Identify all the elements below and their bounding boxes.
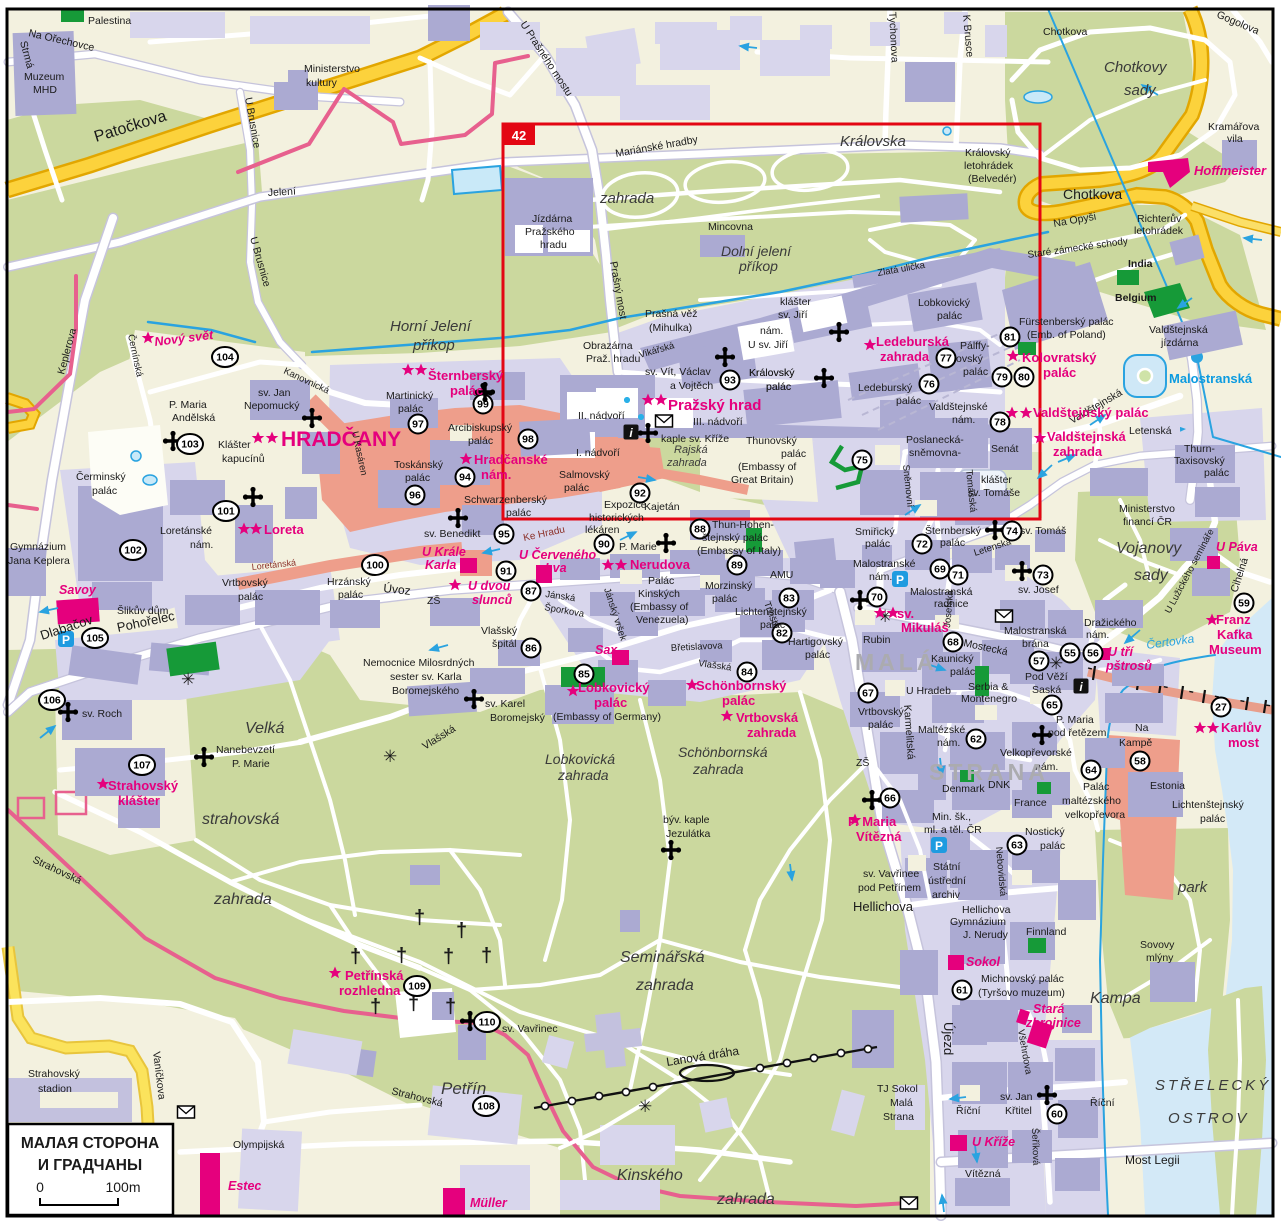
- svg-text:Kramářova: Kramářova: [1208, 121, 1260, 133]
- svg-text:89: 89: [731, 560, 743, 572]
- svg-text:Dražického: Dražického: [1084, 617, 1137, 629]
- svg-text:palác: palác: [594, 695, 627, 710]
- svg-text:66: 66: [884, 793, 896, 805]
- svg-text:96: 96: [409, 490, 421, 502]
- svg-text:Letenská: Letenská: [1129, 425, 1172, 437]
- svg-text:Jízdárna: Jízdárna: [532, 213, 572, 225]
- svg-text:71: 71: [952, 570, 964, 582]
- svg-text:Karlův: Karlův: [1221, 720, 1262, 735]
- svg-text:Andělská: Andělská: [172, 412, 215, 424]
- svg-text:Královský: Královský: [965, 147, 1011, 159]
- svg-text:81: 81: [1004, 332, 1016, 344]
- svg-text:60: 60: [1051, 1109, 1063, 1121]
- svg-text:Vrtbovský: Vrtbovský: [858, 706, 904, 718]
- svg-text:Stará: Stará: [1033, 1002, 1064, 1016]
- svg-text:palác: palác: [781, 448, 806, 460]
- svg-text:ml. a těl. ČR: ml. a těl. ČR: [924, 823, 982, 836]
- svg-text:Královska: Královska: [840, 133, 906, 150]
- svg-text:STŘELECKÝ: STŘELECKÝ: [1155, 1077, 1271, 1094]
- svg-text:lékáren: lékáren: [585, 524, 620, 536]
- svg-text:103: 103: [181, 439, 199, 451]
- svg-text:U Hradeb: U Hradeb: [906, 685, 951, 697]
- svg-text:palác: palác: [1204, 467, 1229, 479]
- svg-text:P. Marie: P. Marie: [619, 541, 657, 553]
- svg-text:U Páva: U Páva: [1216, 540, 1258, 554]
- svg-text:Palác: Palác: [1083, 781, 1109, 793]
- svg-text:Vlašský: Vlašský: [481, 625, 518, 637]
- svg-text:79: 79: [996, 372, 1008, 384]
- svg-text:sv. Roch: sv. Roch: [82, 708, 122, 720]
- svg-text:sester sv. Karla: sester sv. Karla: [390, 671, 462, 683]
- svg-text:Finnland: Finnland: [1026, 926, 1066, 938]
- svg-text:Kolovratský: Kolovratský: [1022, 350, 1097, 365]
- svg-text:palác: palác: [896, 395, 921, 407]
- svg-text:palác: palác: [92, 485, 117, 497]
- svg-text:Nostický: Nostický: [1025, 826, 1065, 838]
- svg-text:Sax: Sax: [595, 643, 618, 657]
- svg-text:Arcibiskupský: Arcibiskupský: [448, 422, 513, 434]
- svg-text:0: 0: [36, 1179, 44, 1195]
- svg-text:Horní Jelení: Horní Jelení: [390, 318, 473, 335]
- svg-text:sv. Vavřinec: sv. Vavřinec: [502, 1023, 558, 1035]
- svg-text:(Belvedér): (Belvedér): [968, 173, 1016, 185]
- svg-text:Martinický: Martinický: [386, 390, 434, 402]
- svg-text:palác: palác: [963, 366, 988, 378]
- svg-text:štejnský palác: štejnský palác: [702, 532, 768, 544]
- svg-text:102: 102: [124, 545, 142, 557]
- svg-text:Mincovna: Mincovna: [708, 221, 753, 233]
- svg-text:Ministerstvo: Ministerstvo: [1119, 503, 1175, 515]
- svg-text:ZŠ: ZŠ: [427, 594, 440, 607]
- svg-text:Kinského: Kinského: [617, 1167, 683, 1184]
- svg-text:sv. Vít, Václav: sv. Vít, Václav: [645, 366, 711, 378]
- svg-text:letohrádek: letohrádek: [964, 160, 1014, 172]
- svg-text:Valdštejnská: Valdštejnská: [1149, 324, 1208, 336]
- svg-text:Lobkovický: Lobkovický: [918, 297, 971, 309]
- svg-text:100m: 100m: [105, 1179, 140, 1195]
- svg-text:palác: palác: [766, 381, 791, 393]
- svg-text:nám.: nám.: [190, 539, 213, 551]
- svg-text:P. Marie: P. Marie: [232, 758, 270, 770]
- svg-text:strahovská: strahovská: [202, 811, 279, 828]
- svg-text:†: †: [414, 907, 425, 929]
- svg-text:Poslanecká-: Poslanecká-: [906, 434, 964, 446]
- svg-text:palác: palác: [405, 472, 430, 484]
- svg-text:Smiřický: Smiřický: [855, 526, 895, 538]
- svg-text:Pražského: Pražského: [525, 226, 575, 238]
- svg-text:jízdárna: jízdárna: [1160, 337, 1199, 349]
- svg-text:Jelení: Jelení: [268, 186, 297, 199]
- svg-text:Vítězná: Vítězná: [965, 1168, 1001, 1180]
- svg-text:Chotkova: Chotkova: [1063, 186, 1122, 202]
- svg-text:Lva: Lva: [545, 561, 567, 575]
- svg-text:nám.: nám.: [1086, 629, 1109, 641]
- svg-text:Gymnázium: Gymnázium: [10, 541, 66, 553]
- svg-text:Müller: Müller: [470, 1196, 508, 1210]
- svg-text:Obrazárna: Obrazárna: [583, 340, 633, 352]
- svg-text:sady: sady: [1124, 82, 1157, 99]
- svg-text:Petřín: Petřín: [441, 1079, 486, 1098]
- svg-text:107: 107: [133, 760, 151, 772]
- svg-text:78: 78: [994, 417, 1006, 429]
- svg-text:Strana: Strana: [883, 1111, 914, 1123]
- svg-text:Kaunický: Kaunický: [931, 653, 974, 665]
- svg-text:68: 68: [947, 637, 959, 649]
- svg-text:101: 101: [217, 506, 235, 518]
- svg-text:74: 74: [1006, 526, 1018, 538]
- svg-text:U Krále: U Krále: [422, 545, 466, 559]
- svg-text:Kampa: Kampa: [1090, 990, 1141, 1007]
- svg-text:Šeříková: Šeříková: [1029, 1128, 1041, 1167]
- svg-text:zahrada: zahrada: [213, 891, 272, 908]
- svg-text:Morzinský: Morzinský: [705, 580, 753, 592]
- svg-text:Kinských: Kinských: [638, 588, 680, 600]
- svg-text:nám.: nám.: [481, 467, 511, 482]
- svg-text:Strahovský: Strahovský: [28, 1068, 81, 1080]
- svg-text:sv. Tomáše: sv. Tomáše: [968, 487, 1020, 499]
- svg-text:Franz: Franz: [1216, 612, 1251, 627]
- svg-text:Vrtbovský: Vrtbovský: [222, 577, 268, 589]
- svg-text:France: France: [1014, 797, 1047, 809]
- svg-text:Schwarzenberský: Schwarzenberský: [464, 494, 548, 506]
- svg-text:Pražský hrad: Pražský hrad: [668, 397, 761, 414]
- svg-text:zahrada: zahrada: [599, 190, 654, 207]
- svg-text:73: 73: [1037, 570, 1049, 582]
- svg-text:most: most: [1228, 735, 1260, 750]
- svg-text:67: 67: [862, 688, 874, 700]
- svg-text:42: 42: [512, 128, 526, 143]
- svg-text:Malostranská: Malostranská: [1004, 625, 1067, 637]
- svg-text:financí ČR: financí ČR: [1123, 515, 1172, 528]
- svg-text:Estonia: Estonia: [1150, 780, 1185, 792]
- svg-text:(Mihulka): (Mihulka): [649, 322, 692, 334]
- svg-text:(Embassy of: (Embassy of: [738, 461, 796, 473]
- svg-text:109: 109: [408, 981, 426, 993]
- svg-text:98: 98: [522, 434, 534, 446]
- svg-text:Montenegro: Montenegro: [961, 693, 1017, 705]
- svg-text:palác: palác: [338, 589, 363, 601]
- svg-text:klášter: klášter: [981, 474, 1012, 486]
- svg-text:palác: palác: [238, 591, 263, 603]
- svg-text:klášter: klášter: [780, 296, 811, 308]
- svg-text:Thunovský: Thunovský: [746, 435, 798, 447]
- svg-text:†: †: [396, 945, 407, 967]
- svg-text:MALÁ: MALÁ: [855, 648, 937, 675]
- svg-text:Prašná věž: Prašná věž: [645, 308, 698, 320]
- svg-text:III. nádvoří: III. nádvoří: [693, 416, 743, 428]
- svg-text:zahrada: zahrada: [666, 457, 707, 469]
- svg-text:Velkopřevorské: Velkopřevorské: [1000, 747, 1072, 759]
- svg-text:Toskánský: Toskánský: [394, 459, 444, 471]
- svg-text:97: 97: [412, 419, 424, 431]
- svg-text:†: †: [445, 996, 456, 1018]
- svg-text:hradu: hradu: [540, 239, 567, 251]
- svg-text:Palestina: Palestina: [88, 15, 131, 27]
- svg-text:83: 83: [783, 593, 795, 605]
- svg-text:57: 57: [1033, 656, 1045, 668]
- svg-text:Schönbornská: Schönbornská: [678, 744, 768, 760]
- svg-text:Malostranské: Malostranské: [853, 558, 916, 570]
- svg-text:nám.: nám.: [937, 737, 960, 749]
- svg-text:Strahovský: Strahovský: [108, 778, 179, 793]
- svg-text:sněmovna-: sněmovna-: [909, 447, 961, 459]
- svg-text:✳: ✳: [383, 747, 397, 766]
- svg-text:U Kříže: U Kříže: [972, 1135, 1015, 1149]
- svg-text:sv. Karel: sv. Karel: [485, 698, 525, 710]
- svg-text:Šternberský: Šternberský: [925, 524, 982, 537]
- svg-text:Petřínská: Petřínská: [345, 968, 404, 983]
- svg-text:Jezulátka: Jezulátka: [666, 828, 711, 840]
- svg-text:palác: palác: [506, 507, 531, 519]
- svg-text:zahrada: zahrada: [747, 725, 797, 740]
- svg-text:Úvoz: Úvoz: [383, 580, 412, 598]
- svg-text:kapucínů: kapucínů: [222, 453, 265, 465]
- svg-text:Loreta: Loreta: [264, 522, 305, 537]
- svg-text:Říční: Říční: [956, 1104, 981, 1117]
- svg-text:72: 72: [916, 539, 928, 551]
- svg-text:Malostranská: Malostranská: [1169, 371, 1253, 386]
- svg-text:†: †: [350, 946, 361, 968]
- svg-text:STRANA: STRANA: [929, 759, 1049, 785]
- svg-text:Hradčanské: Hradčanské: [474, 452, 548, 467]
- svg-text:Saská: Saská: [1032, 684, 1061, 696]
- svg-text:sv.: sv.: [897, 606, 914, 621]
- svg-text:palác: palác: [1200, 813, 1225, 825]
- svg-text:Hoffmeister: Hoffmeister: [1194, 163, 1267, 178]
- svg-text:Lobkovický: Lobkovický: [578, 680, 650, 695]
- svg-text:Státní: Státní: [933, 861, 961, 873]
- svg-text:palác: palác: [722, 693, 755, 708]
- svg-text:Hellichova: Hellichova: [962, 904, 1011, 916]
- svg-text:105: 105: [86, 633, 104, 645]
- svg-text:I. nádvoří: I. nádvoří: [576, 447, 620, 459]
- svg-text:letohrádek: letohrádek: [1134, 225, 1184, 237]
- svg-text:108: 108: [477, 1101, 495, 1113]
- svg-text:AMU: AMU: [770, 569, 793, 581]
- svg-text:sv. Vavřinee: sv. Vavřinee: [863, 868, 919, 880]
- svg-text:Újezd: Újezd: [941, 1022, 956, 1055]
- svg-text:sv. Tomáš: sv. Tomáš: [1020, 525, 1066, 537]
- svg-text:Nemocnice Milosrdných: Nemocnice Milosrdných: [363, 657, 475, 669]
- svg-text:palác: palác: [805, 649, 830, 661]
- svg-text:příkop: příkop: [738, 258, 778, 274]
- svg-text:Serbia &: Serbia &: [968, 681, 1008, 693]
- svg-text:84: 84: [741, 667, 753, 679]
- svg-text:МАЛАЯ СТОРОНА: МАЛАЯ СТОРОНА: [21, 1135, 159, 1152]
- svg-text:India: India: [1128, 258, 1153, 270]
- svg-text:63: 63: [1011, 840, 1023, 852]
- svg-text:(Tyršovo muzeum): (Tyršovo muzeum): [978, 987, 1065, 999]
- svg-text:(Emb. of Poland): (Emb. of Poland): [1027, 329, 1106, 341]
- svg-text:historických: historických: [589, 512, 644, 524]
- svg-text:85: 85: [578, 669, 590, 681]
- svg-text:Belgium: Belgium: [1115, 292, 1156, 304]
- svg-text:106: 106: [43, 695, 61, 707]
- svg-text:klášter: klášter: [118, 793, 160, 808]
- svg-text:Savoy: Savoy: [59, 583, 97, 597]
- svg-text:70: 70: [871, 592, 883, 604]
- svg-text:Nepomucký: Nepomucký: [244, 400, 300, 412]
- svg-text:†: †: [481, 945, 492, 967]
- svg-text:65: 65: [1046, 700, 1058, 712]
- svg-text:P. Maria: P. Maria: [1056, 714, 1094, 726]
- svg-text:55: 55: [1064, 648, 1076, 660]
- svg-text:Sokol: Sokol: [966, 955, 1001, 969]
- svg-text:brána: brána: [1022, 638, 1049, 650]
- svg-text:87: 87: [525, 586, 537, 598]
- svg-text:slunců: slunců: [472, 593, 513, 607]
- svg-text:palác: palác: [1043, 365, 1076, 380]
- svg-text:sady: sady: [1134, 567, 1169, 584]
- svg-text:Min. šk.,: Min. šk.,: [932, 811, 971, 823]
- svg-text:64: 64: [1085, 765, 1097, 777]
- svg-text:Nerudova: Nerudova: [630, 557, 691, 572]
- svg-text:69: 69: [934, 564, 946, 576]
- svg-text:(Embassy of Germany): (Embassy of Germany): [553, 711, 661, 723]
- svg-text:Valdštejnské: Valdštejnské: [929, 401, 988, 413]
- svg-text:(Embassy of: (Embassy of: [630, 601, 688, 613]
- svg-text:Valdštejnská: Valdštejnská: [1047, 429, 1127, 444]
- svg-text:palác: palác: [937, 310, 962, 322]
- svg-text:91: 91: [500, 566, 512, 578]
- svg-text:palác: palác: [865, 538, 890, 550]
- svg-text:sv. Jan: sv. Jan: [1000, 1091, 1033, 1103]
- svg-text:✳: ✳: [638, 1097, 652, 1116]
- svg-text:U Červeného: U Červeného: [519, 547, 596, 562]
- svg-text:Rajská: Rajská: [674, 444, 708, 456]
- svg-text:†: †: [370, 996, 381, 1018]
- svg-text:†: †: [456, 920, 467, 942]
- svg-text:palác: palác: [1040, 840, 1065, 852]
- svg-text:zahrada: zahrada: [1053, 444, 1103, 459]
- svg-text:Lichtenštejnský: Lichtenštejnský: [1172, 799, 1245, 811]
- svg-text:Malostranská: Malostranská: [910, 586, 973, 598]
- svg-text:U sv. Jiří: U sv. Jiří: [748, 339, 788, 351]
- svg-text:sv. Jan: sv. Jan: [258, 387, 291, 399]
- svg-text:zahrada: zahrada: [635, 977, 694, 994]
- svg-text:И ГРАДЧАНЫ: И ГРАДЧАНЫ: [38, 1157, 142, 1174]
- svg-text:27: 27: [1215, 702, 1227, 714]
- svg-text:Michnovský palác: Michnovský palác: [981, 973, 1064, 985]
- svg-text:Vrtbovská: Vrtbovská: [736, 710, 799, 725]
- svg-text:příkop: příkop: [412, 337, 455, 354]
- svg-text:Vítězná: Vítězná: [856, 829, 902, 844]
- svg-text:Chotkova: Chotkova: [1043, 26, 1088, 38]
- svg-text:Loretánské: Loretánské: [160, 525, 212, 537]
- svg-text:býv. kaple: býv. kaple: [663, 814, 710, 826]
- svg-text:Ledeburský: Ledeburský: [858, 382, 913, 394]
- svg-text:Praž. hradu: Praž. hradu: [586, 353, 640, 365]
- svg-text:Boromejského: Boromejského: [392, 685, 459, 697]
- svg-text:nám.: nám.: [760, 325, 783, 337]
- svg-text:61: 61: [956, 985, 968, 997]
- svg-text:94: 94: [459, 472, 471, 484]
- svg-text:92: 92: [634, 488, 646, 500]
- svg-text:maltézského: maltézského: [1062, 795, 1121, 807]
- svg-text:Velká: Velká: [245, 720, 285, 737]
- svg-text:palác: palác: [940, 537, 965, 549]
- svg-text:Křtitel: Křtitel: [1005, 1105, 1032, 1117]
- svg-text:Schönbornský: Schönbornský: [696, 678, 787, 693]
- svg-text:palác: palác: [868, 719, 893, 731]
- svg-text:Klášter: Klášter: [218, 439, 251, 451]
- svg-text:Maltézské: Maltézské: [918, 724, 965, 736]
- svg-text:90: 90: [598, 539, 610, 551]
- svg-text:86: 86: [525, 643, 537, 655]
- svg-text:palác: palác: [564, 482, 589, 494]
- svg-text:Museum: Museum: [1209, 642, 1262, 657]
- svg-text:Fürstenberský palác: Fürstenberský palác: [1019, 316, 1114, 328]
- svg-text:Sovovy: Sovovy: [1140, 939, 1175, 951]
- svg-text:Boromejský: Boromejský: [490, 712, 546, 724]
- svg-text:zbrojnice: zbrojnice: [1025, 1016, 1081, 1030]
- svg-text:Estec: Estec: [228, 1179, 261, 1193]
- svg-text:Malá: Malá: [890, 1097, 913, 1109]
- svg-text:zahrada: zahrada: [557, 767, 609, 783]
- svg-text:Čerminský: Čerminský: [76, 470, 126, 483]
- svg-text:pod řetězem: pod řetězem: [1048, 727, 1107, 739]
- svg-text:Gymnázium: Gymnázium: [950, 916, 1006, 928]
- svg-text:park: park: [1177, 879, 1209, 896]
- svg-text:MHD: MHD: [33, 84, 57, 96]
- svg-text:Karla: Karla: [425, 558, 456, 572]
- svg-text:Jana Keplera: Jana Keplera: [8, 555, 70, 567]
- svg-text:archiv: archiv: [932, 889, 961, 901]
- svg-text:77: 77: [940, 353, 952, 365]
- svg-text:Šternberský: Šternberský: [428, 368, 504, 383]
- svg-text:104: 104: [216, 352, 234, 364]
- svg-text:Venezuela): Venezuela): [636, 614, 689, 626]
- svg-text:Valdštejnský palác: Valdštejnský palác: [1033, 405, 1149, 420]
- svg-text:Kafka: Kafka: [1217, 627, 1253, 642]
- svg-text:Great Britain): Great Britain): [731, 474, 793, 486]
- svg-text:pštrosů: pštrosů: [1105, 659, 1152, 673]
- svg-text:Palác: Palác: [648, 575, 674, 587]
- svg-text:80: 80: [1018, 372, 1030, 384]
- svg-text:Expozice: Expozice: [604, 499, 647, 511]
- svg-text:Hellichova: Hellichova: [853, 899, 914, 914]
- svg-text:zahrada: zahrada: [716, 1191, 775, 1208]
- svg-text:110: 110: [479, 1017, 496, 1029]
- svg-text:TJ Sokol: TJ Sokol: [877, 1083, 918, 1095]
- svg-text:palác: palác: [950, 666, 975, 678]
- svg-text:Na: Na: [1135, 722, 1149, 734]
- svg-text:76: 76: [923, 379, 935, 391]
- svg-text:Kampě: Kampě: [1119, 737, 1152, 749]
- svg-text:nám.: nám.: [952, 414, 975, 426]
- svg-text:Říční: Říční: [1090, 1096, 1115, 1109]
- svg-text:75: 75: [856, 455, 868, 467]
- svg-text:Olympijská: Olympijská: [233, 1139, 285, 1151]
- svg-text:Dolní jelení: Dolní jelení: [721, 243, 793, 259]
- svg-text:stadion: stadion: [38, 1083, 72, 1095]
- svg-text:špitál: špitál: [492, 638, 517, 650]
- svg-text:OSTROV: OSTROV: [1168, 1110, 1249, 1127]
- svg-text:P. Maria: P. Maria: [169, 399, 207, 411]
- svg-text:ZŠ: ZŠ: [856, 756, 869, 769]
- svg-text:58: 58: [1134, 756, 1146, 768]
- svg-text:Pod Věží: Pod Věží: [1025, 671, 1068, 683]
- svg-text:Kajetán: Kajetán: [644, 501, 680, 513]
- svg-text:rozhledna: rozhledna: [339, 983, 401, 998]
- svg-text:100: 100: [366, 560, 384, 572]
- svg-text:nám.: nám.: [869, 571, 892, 583]
- svg-text:Most Legii: Most Legii: [1125, 1153, 1180, 1167]
- svg-text:U dvou: U dvou: [468, 579, 511, 593]
- svg-text:ústřední: ústřední: [928, 875, 966, 887]
- svg-text:zahrada: zahrada: [692, 761, 744, 777]
- svg-text:sv. Josef: sv. Josef: [1018, 584, 1059, 596]
